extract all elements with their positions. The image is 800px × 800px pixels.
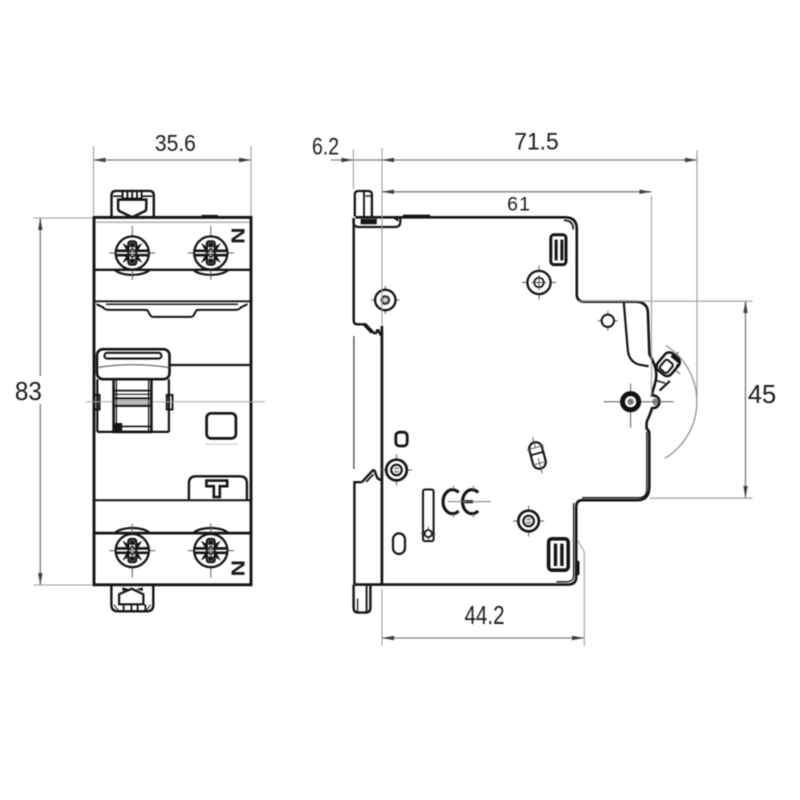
- svg-text:45: 45: [748, 381, 776, 409]
- svg-text:83: 83: [15, 378, 42, 406]
- svg-text:N: N: [229, 560, 249, 576]
- svg-text:6.2: 6.2: [312, 133, 339, 160]
- svg-text:35.6: 35.6: [155, 130, 196, 156]
- svg-text:N: N: [229, 228, 249, 244]
- svg-text:61: 61: [507, 194, 531, 216]
- svg-text:71.5: 71.5: [514, 128, 559, 155]
- svg-text:44.2: 44.2: [465, 600, 505, 630]
